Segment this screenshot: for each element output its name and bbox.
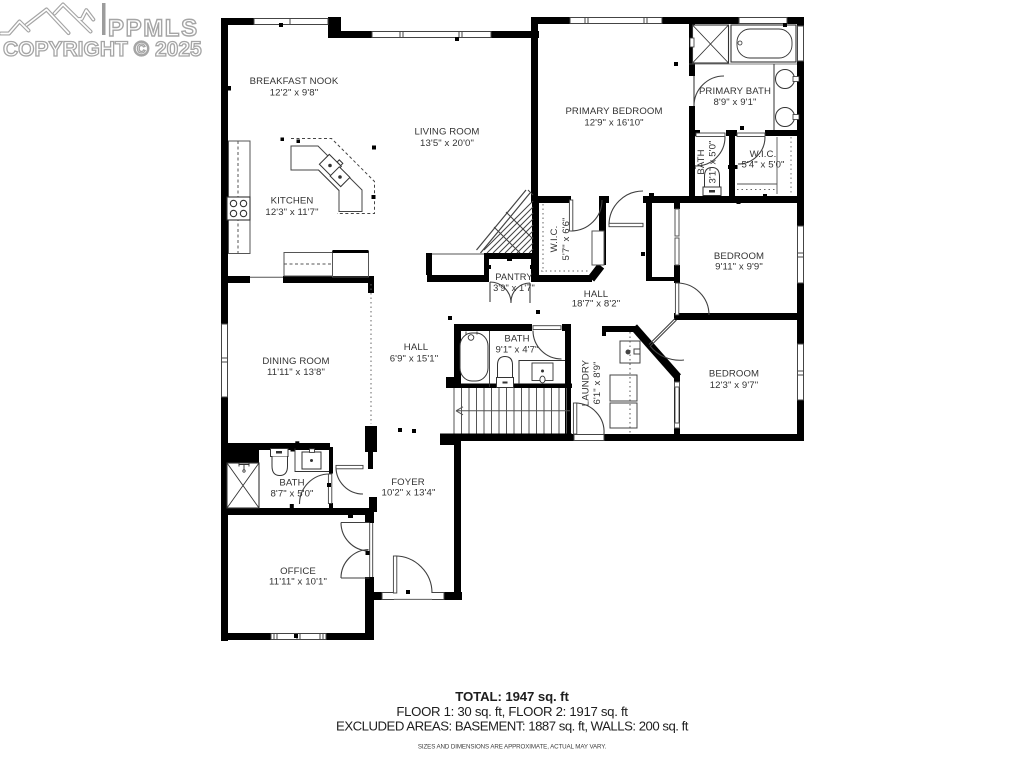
svg-text:TOTAL: 1947 sq. ft: TOTAL: 1947 sq. ft — [455, 689, 569, 704]
svg-text:13'5" x 20'0": 13'5" x 20'0" — [420, 138, 474, 149]
svg-text:8'7" x 5'0": 8'7" x 5'0" — [270, 489, 313, 500]
svg-text:3'1" x 5'0": 3'1" x 5'0" — [708, 140, 719, 183]
svg-text:SIZES AND DIMENSIONS ARE APPRO: SIZES AND DIMENSIONS ARE APPROXIMATE, AC… — [418, 744, 607, 751]
svg-text:BREAKFAST NOOK: BREAKFAST NOOK — [250, 76, 339, 87]
svg-text:10'2" x 13'4": 10'2" x 13'4" — [382, 487, 436, 498]
svg-text:11'11" x 13'8": 11'11" x 13'8" — [267, 367, 325, 378]
svg-text:LIVING ROOM: LIVING ROOM — [414, 127, 479, 138]
svg-text:12'2" x 9'8": 12'2" x 9'8" — [270, 88, 318, 99]
svg-text:BATH: BATH — [504, 333, 529, 344]
svg-text:PANTRY: PANTRY — [495, 272, 532, 282]
svg-text:BATH: BATH — [696, 149, 707, 174]
svg-text:12'3" x 11'7": 12'3" x 11'7" — [265, 207, 318, 218]
svg-text:BATH: BATH — [279, 477, 304, 488]
svg-text:COPYRIGHT © 2025: COPYRIGHT © 2025 — [3, 38, 202, 61]
svg-text:W.I.C.: W.I.C. — [750, 149, 777, 160]
svg-text:HALL: HALL — [404, 342, 429, 353]
svg-text:11'11" x 10'1": 11'11" x 10'1" — [269, 576, 327, 587]
svg-text:KITCHEN: KITCHEN — [271, 196, 314, 207]
svg-text:FLOOR 1: 30 sq. ft, FLOOR 2: 1: FLOOR 1: 30 sq. ft, FLOOR 2: 1917 sq. ft — [396, 704, 628, 719]
svg-text:W.I.C.: W.I.C. — [549, 226, 560, 253]
svg-text:12'3" x 9'7": 12'3" x 9'7" — [710, 380, 758, 391]
svg-text:18'7" x 8'2": 18'7" x 8'2" — [572, 299, 620, 310]
svg-text:BEDROOM: BEDROOM — [714, 251, 764, 262]
svg-text:9'11" x 9'9": 9'11" x 9'9" — [715, 262, 763, 273]
svg-text:EXCLUDED AREAS: BASEMENT: 1887: EXCLUDED AREAS: BASEMENT: 1887 sq. ft, W… — [336, 719, 689, 734]
svg-text:8'9" x 9'1": 8'9" x 9'1" — [713, 97, 756, 108]
svg-text:PRIMARY BATH: PRIMARY BATH — [699, 86, 771, 97]
svg-text:LAUNDRY: LAUNDRY — [581, 359, 592, 406]
svg-text:12'9" x 16'10": 12'9" x 16'10" — [584, 118, 643, 129]
svg-text:5'7" x 6'6": 5'7" x 6'6" — [561, 217, 572, 260]
svg-text:6'1" x 8'9": 6'1" x 8'9" — [592, 361, 603, 404]
svg-text:9'1" x 4'7": 9'1" x 4'7" — [495, 345, 538, 356]
svg-text:BEDROOM: BEDROOM — [709, 369, 759, 380]
svg-text:3'9" x 1'7": 3'9" x 1'7" — [493, 283, 535, 293]
svg-text:PRIMARY BEDROOM: PRIMARY BEDROOM — [565, 106, 662, 117]
svg-text:5'4" x 5'0": 5'4" x 5'0" — [741, 160, 784, 171]
svg-text:DINING ROOM: DINING ROOM — [262, 356, 329, 367]
svg-text:6'9" x 15'1": 6'9" x 15'1" — [390, 353, 438, 364]
